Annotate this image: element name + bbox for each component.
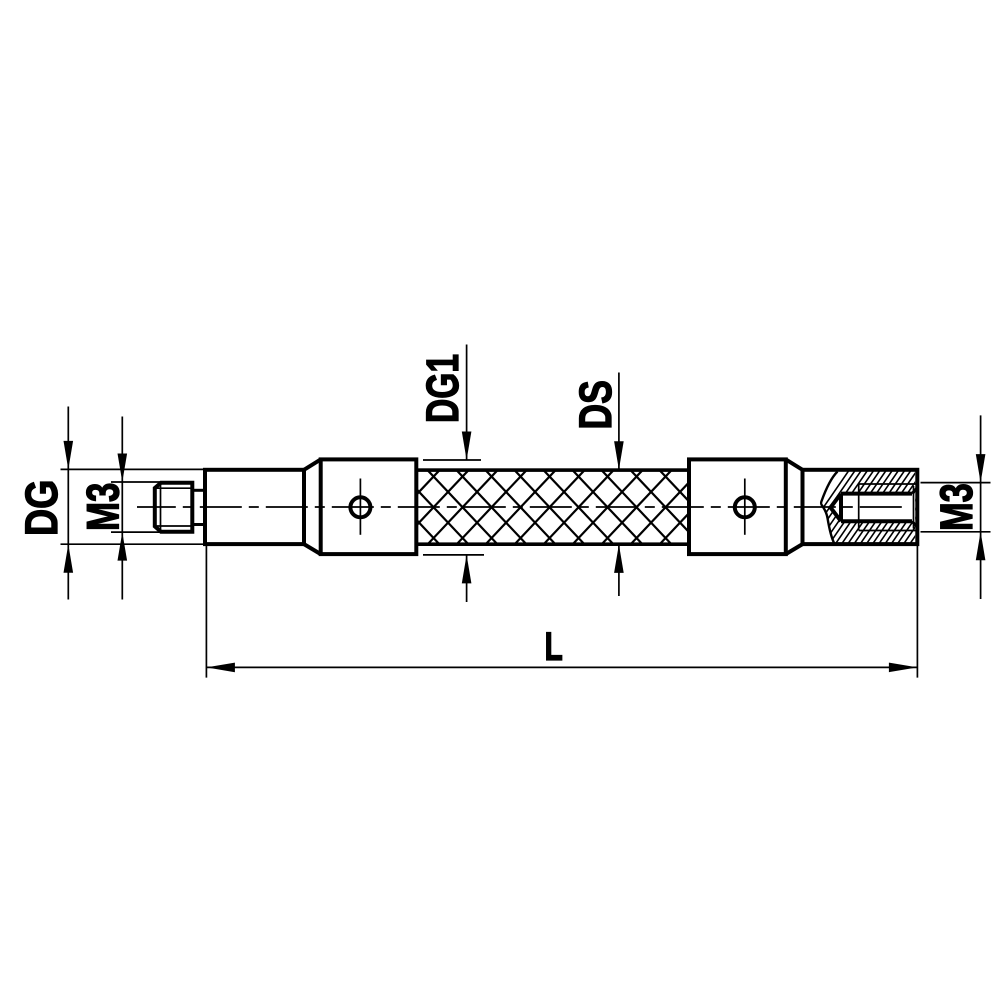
svg-text:DS: DS — [570, 380, 621, 429]
svg-text:DG: DG — [16, 480, 67, 536]
svg-text:M3: M3 — [930, 483, 982, 531]
svg-text:M3: M3 — [77, 483, 129, 531]
svg-text:L: L — [545, 625, 563, 669]
svg-text:DG1: DG1 — [418, 354, 468, 423]
